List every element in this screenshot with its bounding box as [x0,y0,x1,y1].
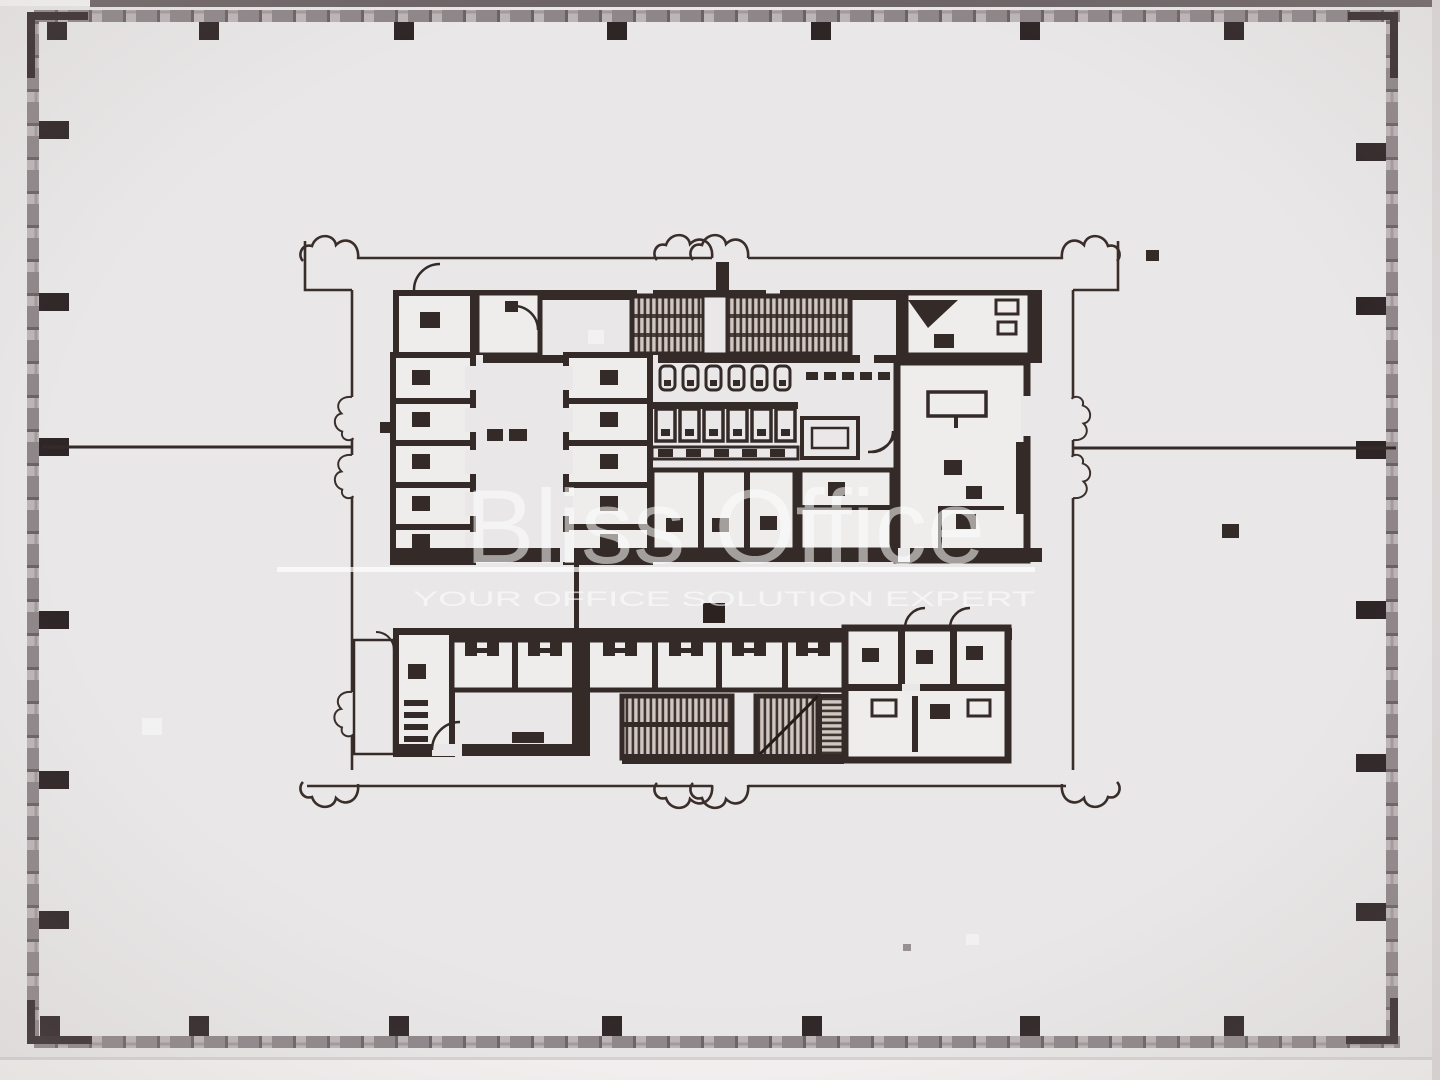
scan-vignette [0,0,1440,1080]
floor-plan-scan: Bliss Office YOUR OFFICE SOLUTION EXPERT [0,0,1440,1080]
floor-plan-drawing: Bliss Office YOUR OFFICE SOLUTION EXPERT [0,0,1440,1080]
